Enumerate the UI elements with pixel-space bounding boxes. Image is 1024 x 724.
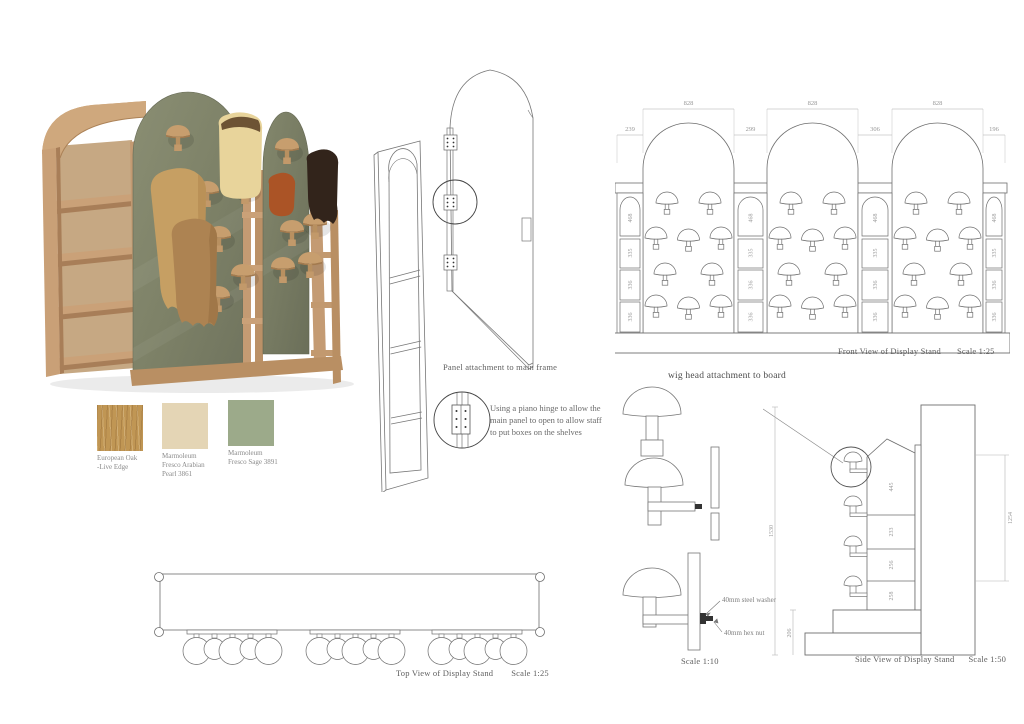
corner-post	[155, 573, 164, 582]
dim-gap-2: 299	[746, 126, 756, 133]
side-shelf-unit	[867, 439, 921, 610]
top-view-caption: Top View of Display Stand Scale 1:25	[396, 668, 549, 678]
col1-dim-335: 335	[628, 249, 634, 258]
side-dim-256: 256	[889, 561, 895, 570]
back-panel-column	[921, 405, 975, 655]
side-plinth	[805, 633, 921, 655]
dim-arch-width-1: 828	[684, 100, 694, 107]
sage-swatch-chip	[228, 400, 274, 446]
material-label: Fresco Sage 3891	[228, 458, 278, 467]
top-view-wig-heads	[183, 638, 527, 665]
corner-post	[155, 628, 164, 637]
material-european-oak: European Oak -Live Edge	[97, 405, 143, 472]
side-dim-233: 233	[889, 528, 895, 537]
material-marmoleum-sage: Marmoleum Fresco Sage 3891	[228, 400, 278, 467]
dim-gap-1: 239	[625, 126, 635, 133]
front-view-drawing: 828 828 828 239 299 306 196	[615, 93, 1010, 358]
col3-dim-336a: 336	[873, 281, 879, 290]
side-mushroom-mounts	[844, 452, 867, 597]
side-dim-1530: 1530	[769, 525, 775, 537]
side-view-caption-text: Side View of Display Stand	[855, 654, 954, 664]
col2-dim-468: 468	[749, 214, 755, 223]
dim-arch-width-3: 828	[933, 100, 943, 107]
side-view-scale: Scale 1:50	[968, 654, 1006, 664]
side-view-drawing: 445 233 256 258 1530 206 1254	[763, 393, 1015, 661]
col1-dim-468: 468	[628, 214, 634, 223]
pearl-swatch-chip	[162, 403, 208, 449]
col4-dim-336b: 336	[992, 313, 998, 322]
col1-dim-336b: 336	[628, 313, 634, 322]
render-left-shelf-unit	[42, 101, 146, 377]
corner-post	[536, 628, 545, 637]
wig-attachment-title: wig head attachment to board	[668, 371, 786, 381]
dim-gap-4: 196	[989, 126, 1000, 133]
steel-washer	[700, 613, 706, 624]
side-dim-1254: 1254	[1008, 512, 1014, 524]
panel-attachment-caption: Panel attachment to main frame	[443, 362, 557, 372]
corner-post	[536, 573, 545, 582]
material-label: -Live Edge	[97, 463, 143, 472]
mounting-board	[711, 447, 719, 540]
col2-dim-335: 335	[749, 249, 755, 258]
material-label: Marmoleum	[162, 452, 208, 461]
main-frame-isometric	[374, 141, 428, 492]
nut-label: 40mm hex nut	[724, 629, 764, 637]
side-view-caption: Side View of Display Stand Scale 1:50	[855, 654, 1006, 664]
piano-hinge-detail	[434, 392, 490, 448]
col3-dim-335: 335	[873, 249, 879, 258]
top-view-body	[160, 574, 539, 630]
col4-dim-468: 468	[992, 214, 998, 223]
col2-dim-336b: 336	[749, 313, 755, 322]
wig-attachment-scale: Scale 1:10	[681, 656, 719, 666]
oak-swatch-chip	[97, 405, 143, 451]
material-label: Fresco Arabian	[162, 461, 208, 470]
front-view-caption: Front View of Display Stand Scale 1:25	[838, 346, 995, 356]
top-view-rails	[187, 630, 522, 634]
panel-handle	[522, 218, 531, 241]
front-view-scale: Scale 1:25	[957, 346, 995, 356]
arched-panel-door	[447, 70, 533, 369]
side-dim-206: 206	[787, 629, 793, 638]
wig-head-attached	[623, 553, 713, 650]
dim-gap-3: 306	[870, 126, 881, 133]
dim-arch-width-2: 828	[808, 100, 818, 107]
col3-dim-468: 468	[873, 214, 879, 223]
hex-nut	[706, 616, 713, 621]
material-label: Pearl 3861	[162, 470, 208, 479]
material-label: European Oak	[97, 454, 143, 463]
wig-auburn-bob	[269, 173, 296, 216]
render-3d-display-stand	[30, 60, 370, 400]
piano-hinge-note: Using a piano hinge to allow the main pa…	[490, 403, 608, 439]
side-dim-258: 258	[889, 592, 895, 601]
top-view-drawing	[146, 570, 554, 670]
wig-dark-brown	[307, 149, 339, 224]
top-view-caption-text: Top View of Display Stand	[396, 668, 493, 678]
col3-dim-336b: 336	[873, 313, 879, 322]
col4-dim-336a: 336	[992, 281, 998, 290]
material-label: Marmoleum	[228, 449, 278, 458]
side-board	[915, 445, 921, 610]
design-sheet: European Oak -Live Edge Marmoleum Fresco…	[0, 0, 1024, 724]
wig-head-side-view	[625, 458, 702, 525]
wig-head-front-view	[623, 387, 681, 456]
side-pedestal	[833, 610, 921, 633]
side-dim-445: 445	[889, 483, 895, 492]
material-marmoleum-arabian-pearl: Marmoleum Fresco Arabian Pearl 3861	[162, 403, 208, 479]
col1-dim-336a: 336	[628, 281, 634, 290]
top-view-scale: Scale 1:25	[511, 668, 549, 678]
col4-dim-335: 335	[992, 249, 998, 258]
front-view-caption-text: Front View of Display Stand	[838, 346, 941, 356]
col2-dim-336a: 336	[749, 281, 755, 290]
